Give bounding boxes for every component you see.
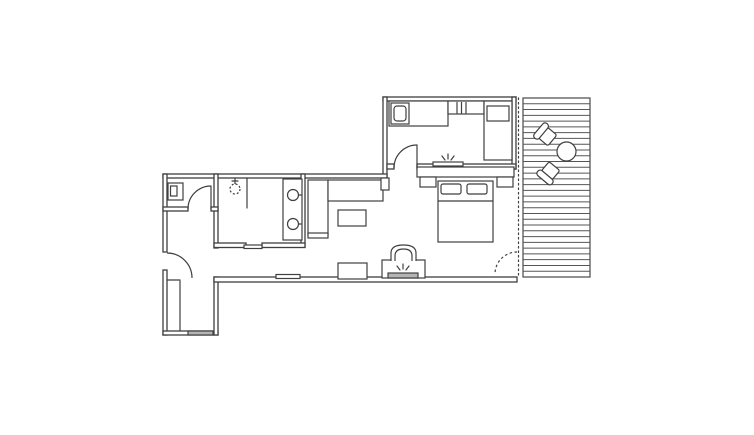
fridge-top — [487, 106, 509, 121]
wall-west-upper — [163, 174, 167, 252]
fireplace-ember-bar — [388, 273, 418, 278]
vanity-sink-2 — [288, 219, 299, 230]
wall-kitchen-south-stub — [387, 164, 394, 169]
door-entry-arc — [167, 253, 192, 278]
floor-plan-drawing — [0, 0, 754, 435]
coffee-table — [338, 210, 366, 226]
deck-terrace — [523, 98, 590, 277]
sparkle-ray — [442, 156, 445, 160]
console-shelf — [276, 275, 300, 279]
wall-entry-east — [214, 277, 218, 335]
floor-plan-page — [0, 0, 754, 435]
entry-threshold — [188, 331, 213, 335]
wc-basin-bowl — [171, 186, 178, 196]
pillow-left — [441, 184, 461, 194]
kitchen-sink-basin — [394, 106, 406, 121]
wall-main-north — [163, 174, 387, 178]
fireplace-flue-inner — [395, 249, 412, 261]
sparkle-ray — [451, 156, 454, 160]
wall-bath-south-west — [214, 243, 246, 248]
sofa-chaise — [308, 180, 328, 235]
nightstand-left — [420, 177, 436, 187]
deck-layer — [523, 98, 590, 277]
flame-headboard-icon — [442, 154, 454, 160]
side-table — [338, 263, 367, 279]
door-wc-arc — [188, 186, 211, 209]
headboard-shelf — [433, 162, 463, 166]
wall-wc-south-stub — [211, 207, 218, 211]
sofa-seat — [328, 180, 383, 201]
wall-bath-south-east — [262, 243, 305, 248]
wall-column — [381, 178, 389, 190]
door-kitchen-arc — [394, 145, 417, 168]
pocket-door-leaf — [244, 245, 262, 249]
nightstand-right — [497, 177, 513, 187]
pillow-right — [467, 184, 487, 194]
sofa-end-pad — [308, 233, 328, 238]
shower-head — [230, 184, 240, 194]
deck-round-table — [557, 142, 576, 161]
bed-headboard — [417, 167, 514, 177]
bath-vanity-counter — [283, 179, 302, 240]
wall-wc-south-west — [163, 207, 188, 211]
furniture-layer — [167, 98, 519, 335]
wall-west-lower — [163, 270, 167, 335]
vanity-sink-1 — [288, 190, 299, 201]
door-terrace-arc — [495, 252, 517, 274]
